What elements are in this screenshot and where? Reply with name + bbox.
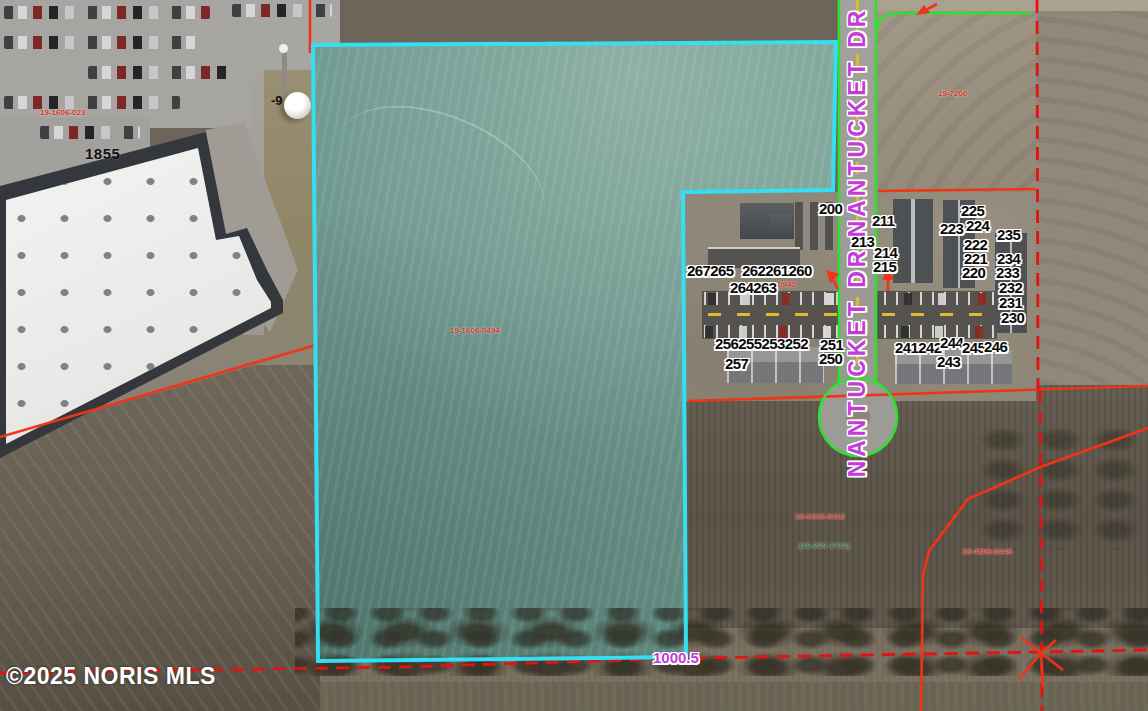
parcel-id-south-3: 19-4506-0449 — [962, 547, 1012, 556]
lot-label-264-263: 264263 — [730, 281, 776, 295]
elevation-marker-label: -9 — [271, 93, 283, 108]
green-boundary-northeast — [876, 13, 1031, 38]
lot-label-245: 245 — [962, 341, 985, 355]
lot-label-224: 224 — [966, 219, 989, 233]
parcel-id-field-center: 19-1606-0494 — [450, 326, 500, 335]
lot-label-244: 244 — [940, 336, 963, 350]
lot-label-250: 250 — [819, 352, 842, 366]
lot-label-233: 233 — [996, 266, 1019, 280]
lot-label-230: 230 — [1001, 311, 1024, 325]
lot-label-223: 223 — [940, 222, 963, 236]
lot-label-243: 243 — [937, 355, 960, 369]
lot-label-232: 232 — [999, 281, 1022, 295]
lot-label-235: 235 — [997, 228, 1020, 242]
lot-label-246: 246 — [984, 340, 1007, 354]
lot-label-215: 215 — [873, 260, 896, 274]
parcel-id-warehouse: 19-1606-023 — [40, 108, 85, 117]
parcel-id-south-2: (19-226-1712) — [799, 541, 850, 550]
red-boundary-west — [0, 345, 316, 437]
building-number-label: 1855 — [85, 145, 120, 162]
red-dashed-line-east — [1037, 0, 1038, 390]
parcel-id-north-field: 19-7200 — [938, 89, 967, 98]
lot-label-220: 220 — [962, 266, 985, 280]
parcel-id-dev-small: 0940 — [778, 280, 796, 289]
lot-label-200: 200 — [819, 202, 842, 216]
street-label-nantucket-dr-north: NANTUCKET DR — [844, 5, 870, 239]
red-boundary-townhomes-north — [878, 189, 1036, 191]
lot-label-231: 231 — [999, 296, 1022, 310]
distance-label: 1000.5 — [653, 649, 699, 666]
lot-label-256-255-253-252: 256255253252 — [715, 337, 808, 351]
parcel-id-south-1: 19-1616-0412 — [795, 512, 845, 521]
lot-label-225: 225 — [961, 204, 984, 218]
lot-label-257: 257 — [725, 357, 748, 371]
lot-label-267-265: 267265 — [687, 264, 733, 278]
red-boundary-southeast — [921, 428, 1148, 711]
copyright-watermark: ©2025 NORIS MLS — [6, 663, 216, 690]
lot-label-241-242: 241242 — [895, 341, 941, 355]
aerial-map: NANTUCKET DR NANTUCKET DR 200 211 213 21… — [0, 0, 1148, 711]
lot-label-262-261-260: 262261260 — [742, 264, 812, 278]
red-boundary-townhomes-south — [688, 386, 1148, 401]
street-label-nantucket-dr-south: NANTUCKET DR — [844, 245, 870, 479]
lot-label-211: 211 — [872, 214, 894, 228]
lot-label-213: 213 — [851, 235, 874, 249]
